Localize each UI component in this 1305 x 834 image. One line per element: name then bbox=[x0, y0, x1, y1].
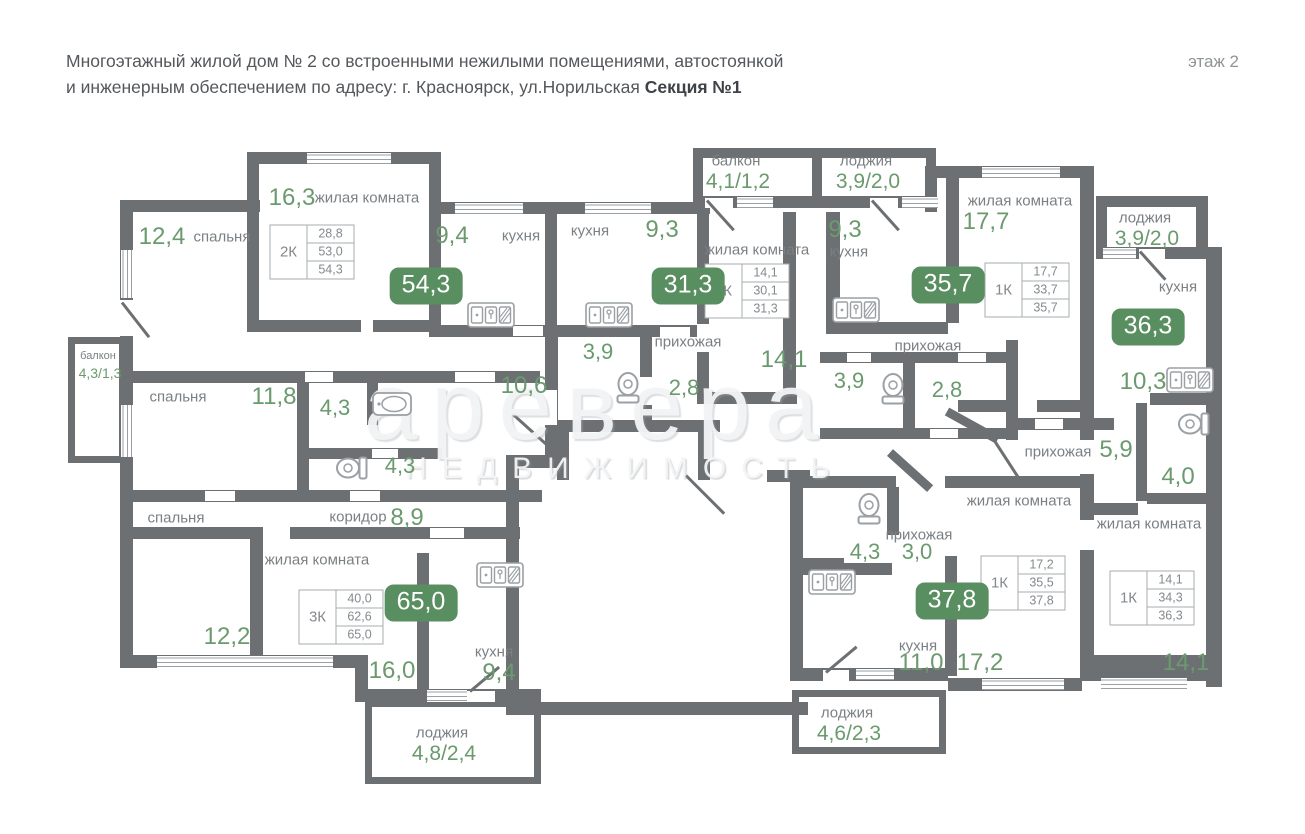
wall bbox=[1080, 166, 1094, 407]
title-line1: Многоэтажный жилой дом № 2 со встроенным… bbox=[66, 51, 783, 71]
room-name-label: спальня bbox=[148, 510, 205, 527]
room-area-value: 17,7 bbox=[963, 208, 1010, 236]
room-area-value: 4,3 bbox=[850, 539, 881, 565]
room-area-value: 3,9 bbox=[834, 368, 865, 394]
door-opening bbox=[305, 372, 333, 382]
door-opening bbox=[958, 353, 986, 362]
apartment-info-table: 2К28,853,054,3 bbox=[270, 225, 355, 280]
room-area-value: 9,4 bbox=[435, 222, 468, 250]
wall bbox=[1014, 418, 1114, 430]
wall bbox=[557, 432, 569, 480]
toilet-icon bbox=[852, 496, 886, 522]
apartment-areas-list: 40,062,665,0 bbox=[337, 591, 383, 644]
kitchen-sink-icon bbox=[585, 302, 633, 328]
apartment-areas-list: 17,235,537,8 bbox=[1019, 557, 1065, 610]
apartment-type-label: 1К bbox=[1111, 572, 1148, 625]
title-line2: и инженерным обеспечением по адресу: г. … bbox=[66, 77, 645, 97]
wall bbox=[697, 392, 797, 404]
room-name-label: прихожая bbox=[1025, 444, 1092, 461]
wall bbox=[1090, 503, 1138, 515]
wall bbox=[698, 432, 710, 480]
section-label: Секция №1 bbox=[645, 77, 742, 97]
apartment-info-table: 3К40,062,665,0 bbox=[299, 590, 384, 645]
wall bbox=[132, 490, 542, 502]
door-opening bbox=[455, 372, 495, 382]
apartment-type-label: 1К bbox=[986, 264, 1023, 317]
room-name-label: кухня bbox=[830, 244, 868, 261]
wall bbox=[1136, 403, 1147, 501]
apartment-areas-list: 14,134,336,3 bbox=[1148, 572, 1194, 625]
balcony-area-value: 4,8/2,4 bbox=[412, 742, 476, 766]
apartment-info-table: 1К17,235,537,8 bbox=[981, 556, 1066, 611]
balcony-area-value: 4,6/2,3 bbox=[817, 722, 881, 746]
wall bbox=[417, 553, 429, 693]
room-area-value: 12,4 bbox=[139, 223, 186, 251]
window bbox=[157, 656, 333, 668]
balcony-area-value: 3,9/2,0 bbox=[1115, 227, 1179, 251]
balcony-name-label: балкон bbox=[712, 153, 761, 170]
window bbox=[856, 669, 894, 680]
wall bbox=[640, 337, 652, 377]
room-area-value: 9,3 bbox=[828, 216, 861, 244]
balcony-name-label: балкон bbox=[80, 350, 116, 362]
room-area-value: 10,3 bbox=[1120, 368, 1167, 396]
door-opening bbox=[205, 491, 235, 501]
balcony-area-value: 3,9/2,0 bbox=[836, 170, 900, 194]
window bbox=[982, 679, 1064, 690]
room-area-value: 4,3 bbox=[385, 453, 416, 479]
room-name-label: жилая комната bbox=[1097, 516, 1202, 533]
room-area-value: 8,9 bbox=[390, 504, 423, 532]
wall bbox=[297, 448, 442, 459]
room-name-label: жилая комната bbox=[705, 242, 810, 259]
wall bbox=[120, 200, 260, 212]
kitchen-sink-icon bbox=[832, 297, 880, 323]
room-name-label: жилая комната bbox=[265, 552, 370, 569]
balcony-area-value: 4,1/1,2 bbox=[706, 170, 770, 194]
window bbox=[427, 690, 467, 702]
apartment-total-area-badge[interactable]: 31,3 bbox=[652, 268, 725, 305]
window bbox=[982, 167, 1060, 178]
door-opening bbox=[930, 429, 958, 438]
apartment-total-area-badge[interactable]: 65,0 bbox=[385, 585, 458, 622]
document-title: Многоэтажный жилой дом № 2 со встроенным… bbox=[66, 48, 946, 100]
window bbox=[737, 197, 773, 208]
room-area-value: 9,4 bbox=[482, 659, 515, 687]
wall bbox=[650, 420, 720, 432]
door-opening bbox=[350, 491, 380, 501]
kitchen-sink-icon bbox=[1166, 367, 1214, 393]
room-name-label: прихожая bbox=[895, 338, 962, 355]
door-opening bbox=[467, 691, 495, 702]
apartment-info-table: 1К14,134,336,3 bbox=[1110, 571, 1195, 626]
room-area-value: 16,3 bbox=[269, 184, 316, 212]
window bbox=[121, 250, 133, 298]
apartment-total-area-badge[interactable]: 35,7 bbox=[912, 267, 985, 304]
room-area-value: 14,1 bbox=[761, 346, 808, 374]
room-name-label: спальня bbox=[150, 389, 207, 406]
room-area-value: 14,1 bbox=[1163, 649, 1210, 677]
door-opening bbox=[513, 326, 543, 336]
room-area-value: 2,8 bbox=[669, 375, 700, 401]
wall bbox=[790, 476, 896, 488]
room-name-label: кухня bbox=[571, 223, 609, 240]
kitchen-sink-icon bbox=[467, 302, 515, 328]
kitchen-sink-icon bbox=[476, 562, 524, 588]
apartment-type-label: 2К bbox=[271, 226, 308, 279]
door-opening bbox=[430, 528, 464, 538]
balcony-name-label: лоджия bbox=[1119, 210, 1171, 227]
room-area-value: 4,3 bbox=[320, 395, 351, 421]
room-area-value: 3,9 bbox=[583, 339, 614, 365]
balcony-name-label: лоджия bbox=[840, 153, 892, 170]
window bbox=[455, 203, 523, 214]
toilet-icon bbox=[611, 375, 645, 401]
toilet-icon bbox=[335, 455, 369, 481]
room-area-value: 5,9 bbox=[1099, 436, 1132, 464]
room-area-value: 10,6 bbox=[501, 372, 548, 400]
toilet-icon bbox=[876, 376, 910, 402]
apartment-areas-list: 17,733,735,7 bbox=[1023, 264, 1069, 317]
wall bbox=[546, 420, 650, 432]
room-name-label: прихожая bbox=[655, 334, 722, 351]
room-area-value: 2,8 bbox=[932, 377, 963, 403]
wall bbox=[297, 383, 309, 490]
wall bbox=[132, 527, 254, 539]
wall bbox=[1206, 247, 1222, 687]
floor-number-label: этаж 2 bbox=[1188, 52, 1239, 72]
wall bbox=[247, 158, 259, 212]
room-area-value: 12,2 bbox=[204, 623, 251, 651]
wall bbox=[945, 476, 1085, 488]
window bbox=[1101, 678, 1187, 691]
wall bbox=[506, 702, 808, 715]
wall bbox=[247, 320, 361, 332]
room-name-label: спальня bbox=[194, 229, 251, 246]
apartment-total-area-badge[interactable]: 54,3 bbox=[390, 268, 463, 305]
door-opening bbox=[1035, 419, 1063, 429]
room-name-label: жилая комната bbox=[968, 193, 1073, 210]
apartment-total-area-badge[interactable]: 37,8 bbox=[916, 583, 989, 620]
balcony-area-value: 4,3/1,3 bbox=[79, 365, 122, 381]
room-name-label: жилая комната bbox=[967, 493, 1072, 510]
room-name-label: кухня bbox=[899, 638, 937, 655]
room-name-label: кухня bbox=[1159, 279, 1197, 296]
balcony-name-label: лоджия bbox=[821, 705, 873, 722]
window bbox=[307, 153, 391, 164]
washbasin-icon bbox=[372, 392, 412, 416]
room-name-label: жилая комната bbox=[315, 190, 420, 207]
balcony-name-label: лоджия bbox=[416, 725, 468, 742]
apartment-areas-list: 28,853,054,3 bbox=[308, 226, 354, 279]
wall bbox=[250, 527, 263, 667]
wall bbox=[790, 476, 803, 676]
wall bbox=[826, 322, 948, 334]
door-swing-line bbox=[992, 438, 1021, 480]
kitchen-sink-icon bbox=[808, 569, 856, 595]
toilet-icon bbox=[1177, 411, 1211, 437]
wall bbox=[1096, 196, 1208, 207]
room-area-value: 9,3 bbox=[645, 216, 678, 244]
room-area-value: 17,2 bbox=[957, 649, 1004, 677]
room-name-label: прихожая bbox=[886, 527, 953, 544]
door-swing-line bbox=[685, 474, 725, 514]
apartment-type-label: 3К bbox=[300, 591, 337, 644]
room-name-label: коридор bbox=[329, 509, 386, 526]
apartment-info-table: 1К17,733,735,7 bbox=[985, 263, 1070, 318]
door-opening bbox=[1080, 520, 1094, 550]
door-opening bbox=[847, 353, 871, 362]
room-area-value: 16,0 bbox=[369, 657, 416, 685]
window bbox=[585, 203, 651, 214]
apartment-total-area-badge[interactable]: 36,3 bbox=[1112, 309, 1185, 346]
floorplan-page: Многоэтажный жилой дом № 2 со встроенным… bbox=[0, 0, 1305, 834]
room-name-label: кухня bbox=[475, 644, 513, 661]
room-name-label: кухня bbox=[502, 228, 540, 245]
window bbox=[121, 405, 133, 457]
window bbox=[902, 197, 938, 208]
apartment-areas-list: 14,130,131,3 bbox=[743, 265, 789, 318]
room-area-value: 4,0 bbox=[1161, 463, 1194, 491]
wall bbox=[1147, 493, 1208, 504]
room-area-value: 11,8 bbox=[252, 383, 297, 411]
